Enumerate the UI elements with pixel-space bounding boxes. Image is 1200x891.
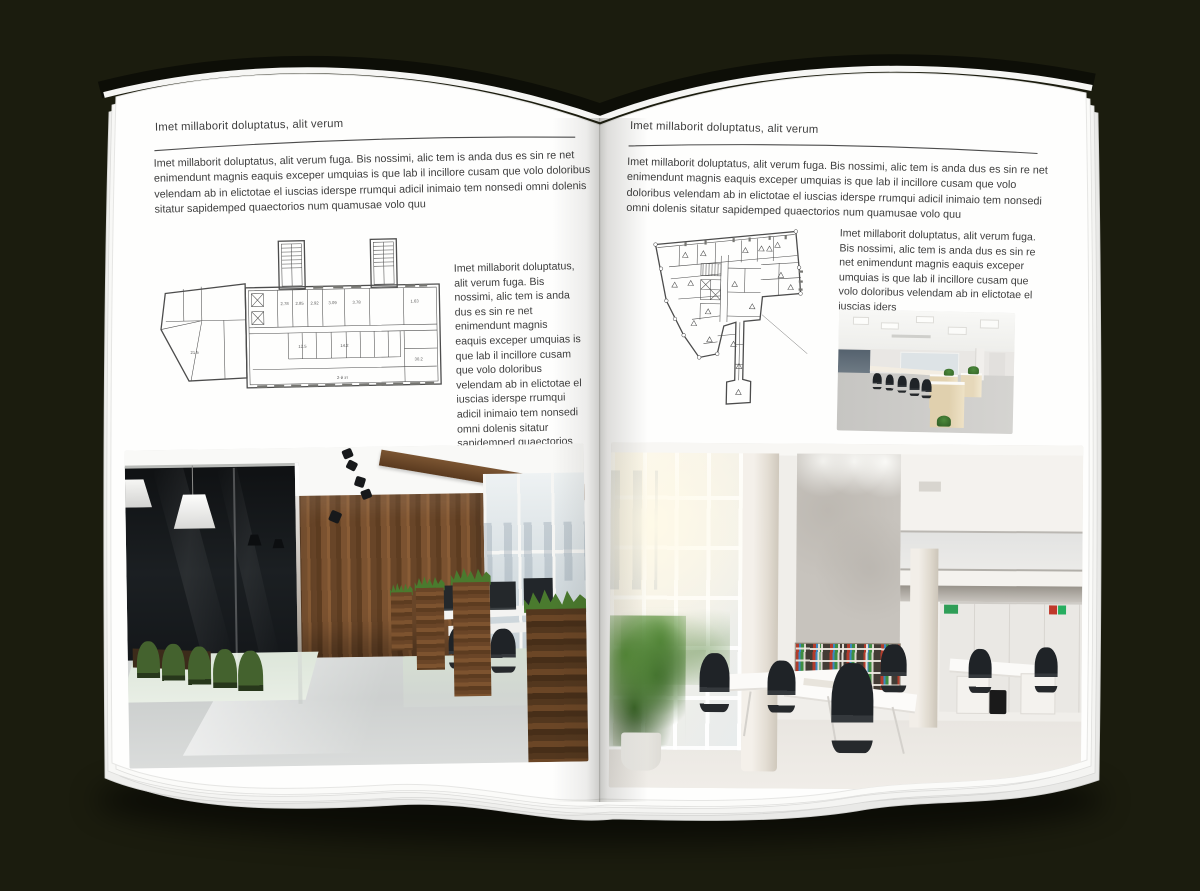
ceiling-light	[916, 316, 934, 324]
left-page: Imet millaborit doluptatus, alit verum I…	[117, 51, 607, 471]
waste-bin	[989, 690, 1006, 714]
wood-planter	[416, 587, 445, 670]
office-chair	[897, 376, 906, 393]
office-chair	[873, 373, 882, 389]
green-chair	[238, 650, 264, 706]
office-chair	[968, 648, 992, 693]
green-chair	[137, 641, 161, 692]
left-page-intro: Imet millaborit doluptatus, alit verum f…	[154, 148, 597, 218]
ceiling-light	[980, 320, 1000, 329]
ceiling-light	[948, 326, 968, 335]
svg-text:2.78: 2.78	[280, 301, 289, 306]
office-chair	[922, 379, 932, 399]
green-chair	[187, 646, 211, 699]
svg-text:3.09: 3.09	[328, 300, 337, 305]
photo-small-office	[837, 309, 1015, 434]
right-page: Imet millaborit doluptatus, alit verum I…	[595, 55, 1104, 485]
safety-sign-green	[1058, 606, 1066, 614]
ceiling-light	[881, 322, 899, 330]
plant-pot	[621, 732, 661, 770]
track-spotlight-cluster	[340, 449, 359, 475]
left-page-side-text: Imet millaborit doluptatus, alit verum f…	[454, 259, 584, 466]
svg-text:14.2: 14.2	[340, 343, 349, 348]
svg-text:1.63: 1.63	[410, 298, 419, 303]
desk-plant	[943, 368, 954, 375]
svg-text:12.5: 12.5	[298, 344, 307, 349]
desk-plant	[968, 367, 979, 374]
svg-text:2.85: 2.85	[295, 301, 304, 306]
office-chair	[699, 653, 730, 712]
wood-planter	[391, 592, 413, 650]
office-chair	[1034, 647, 1058, 692]
city-skyline	[484, 521, 586, 582]
plan-symbols	[670, 240, 795, 396]
photo-dark-office	[125, 443, 589, 768]
right-page-header: Imet millaborit doluptatus, alit verum	[630, 120, 819, 136]
brochure-mockup: Imet millaborit doluptatus, alit verum I…	[0, 0, 1200, 891]
office-chair	[885, 374, 894, 391]
left-page-header: Imet millaborit doluptatus, alit verum	[155, 118, 344, 134]
wood-planter-large	[526, 609, 588, 763]
floor-plan-right	[642, 222, 811, 425]
right-page-side-text: Imet millaborit doluptatus, alit verum f…	[838, 226, 1040, 318]
svg-text:30.2: 30.2	[415, 356, 424, 361]
potted-plant-leaves	[609, 615, 686, 747]
safety-sign-red	[1049, 606, 1057, 614]
exit-sign	[944, 605, 958, 614]
glass-meeting-room	[125, 464, 298, 661]
office-chair	[881, 644, 907, 692]
wood-planter	[453, 582, 492, 697]
svg-text:2-й эт: 2-й эт	[337, 375, 348, 380]
monitor	[489, 581, 516, 609]
right-page-intro: Imet millaborit doluptatus, alit verum f…	[626, 155, 1057, 226]
svg-text:3.78: 3.78	[352, 300, 361, 305]
concrete-wall	[796, 454, 901, 644]
office-chair	[910, 377, 920, 395]
svg-text:21.5: 21.5	[190, 350, 199, 355]
office-chair	[490, 629, 516, 673]
floor-plant	[937, 416, 951, 427]
svg-text:2.92: 2.92	[310, 300, 319, 305]
office-chair	[767, 661, 796, 713]
spread-content: Imet millaborit doluptatus, alit verum I…	[0, 0, 1200, 891]
green-chair	[162, 644, 186, 695]
track-spotlight-cluster	[354, 477, 373, 503]
green-chair	[213, 649, 238, 703]
office-chair-large	[831, 663, 874, 753]
floor-plan-left: 2.78 2.85 2.92 3.09 3.78 1.63 12.5 14.2 …	[154, 232, 450, 420]
ceiling-light	[853, 317, 869, 325]
photo-bright-office	[609, 442, 1083, 790]
